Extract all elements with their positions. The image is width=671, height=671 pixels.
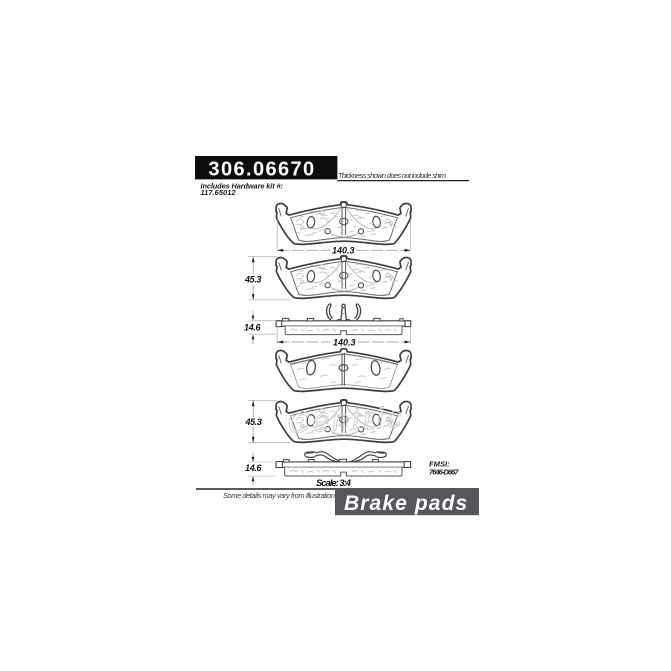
svg-text:Thickness shown does not inclu: Thickness shown does not include shim (338, 171, 446, 180)
svg-text:140.3: 140.3 (333, 337, 356, 347)
svg-text:117.65012: 117.65012 (201, 188, 237, 197)
svg-text:45.3: 45.3 (244, 417, 262, 427)
svg-text:306.06670: 306.06670 (208, 158, 315, 180)
svg-text:Brake pads: Brake pads (344, 492, 468, 515)
svg-text:7646-D667: 7646-D667 (429, 467, 459, 476)
svg-text:140.3: 140.3 (332, 246, 355, 256)
svg-text:14.6: 14.6 (245, 463, 262, 473)
svg-text:Some details may vary from Ill: Some details may vary from Illustration (223, 491, 335, 500)
svg-text:45.3: 45.3 (244, 275, 262, 285)
svg-text:Scale: 3:4: Scale: 3:4 (316, 477, 352, 488)
svg-text:14.6: 14.6 (244, 322, 261, 332)
